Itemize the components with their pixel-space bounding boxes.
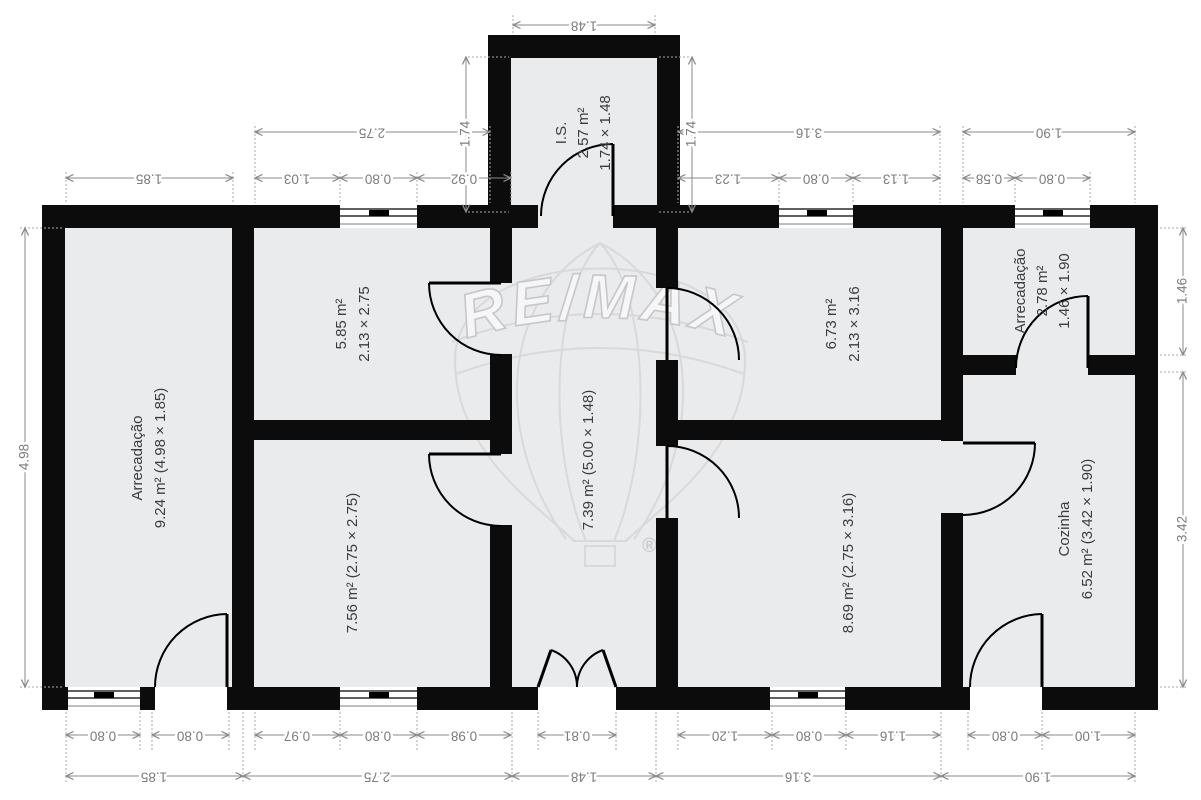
dim-label: 1.46 [1175,278,1190,304]
room-label-storage-right-name: Arrecadação [1012,248,1029,333]
dim-label: 1.03 [284,171,310,186]
dim-label: 1.90 [1025,769,1051,784]
room-label-wc-area: 2.57 m² [575,108,592,159]
dim-label: 1.74 [684,120,699,147]
dim-label: 0.58 [976,171,1002,186]
dim-label: 0.81 [564,728,590,743]
dim-label: 1.48 [571,769,597,784]
window-symbol [68,687,140,710]
room-label-673-area: 6.73 m² [823,299,840,350]
room-label-585-area: 5.85 m² [333,299,350,350]
room-label-wc-name: I.S. [553,122,570,145]
window-symbol [1015,205,1090,228]
window-symbol [779,205,853,228]
room-label-869: 8.69 m² (2.75 × 3.16) [840,493,857,634]
dim-label: 1.16 [880,728,906,743]
dim-label: 0.80 [803,171,829,186]
window-symbol [340,687,417,710]
dim-label: 1.13 [883,171,909,186]
dim-label: 0.80 [1039,171,1065,186]
dim-label: 1.20 [712,728,738,743]
window-symbol [770,687,845,710]
dim-label: 1.48 [571,18,597,33]
room-label-585-size: 2.13 × 2.75 [356,286,373,361]
registered-trademark-icon: ® [642,535,657,557]
dim-label: 0.80 [992,728,1018,743]
floorplan-canvas: RE/MAX ® [0,0,1201,800]
room-label-storage-left-details: 9.24 m² (4.98 × 1.85) [152,388,169,529]
room-label-kitchen-details: 6.52 m² (3.42 × 1.90) [1079,459,1096,600]
room-label-hallway: 7.39 m² (5.00 × 1.48) [580,390,597,531]
window-symbol [340,205,417,228]
room-label-756: 7.56 m² (2.75 × 2.75) [344,493,361,634]
dim-label: 0.98 [451,728,477,743]
dim-label: 0.80 [365,728,391,743]
dim-label: 1.23 [715,171,741,186]
room-label-storage-right-area: 2.78 m² [1034,266,1051,317]
room-label-kitchen-name: Cozinha [1056,501,1073,557]
dim-label: 1.85 [141,769,167,784]
dim-label: 1.85 [136,171,162,186]
dim-label: 0.80 [796,728,822,743]
dim-label: 2.75 [364,769,390,784]
dim-label: 1.00 [1075,728,1101,743]
dim-label: 0.92 [451,171,477,186]
dim-label: 1.74 [458,120,473,147]
room-label-storage-right-size: 1.46 × 1.90 [1056,253,1073,328]
dim-label: 2.75 [359,125,385,140]
dim-label: 3.16 [796,125,822,140]
room-label-storage-left-name: Arrecadação [129,415,146,500]
dim-label: 0.80 [90,728,116,743]
room-label-wc-size: 1.74 × 1.48 [597,95,614,170]
floorplan-page: RE/MAX ® [0,0,1201,800]
dim-label: 0.80 [177,728,203,743]
dim-label: 3.42 [1175,516,1190,542]
dim-label: 0.97 [284,728,310,743]
dim-label: 4.98 [17,444,32,470]
dim-label: 1.90 [1036,125,1062,140]
room-label-673-size: 2.13 × 3.16 [846,286,863,361]
dim-label: 0.80 [365,171,391,186]
dim-label: 3.16 [785,769,811,784]
